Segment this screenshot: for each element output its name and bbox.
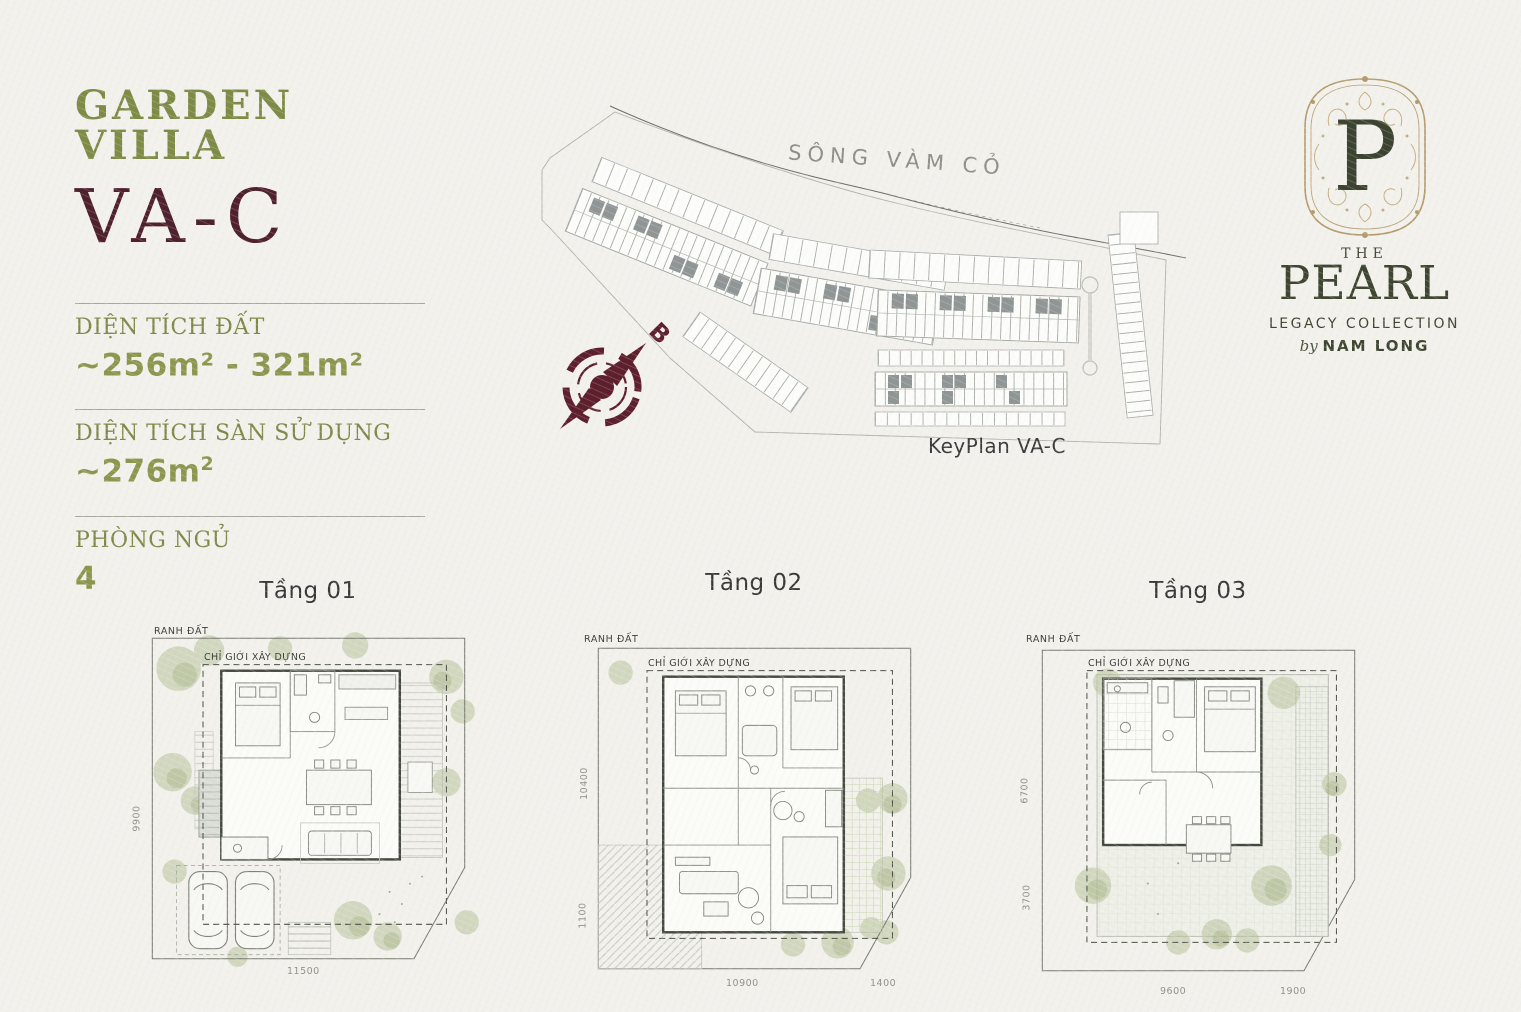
spec-value-text: ~256m² - 321m² xyxy=(75,347,364,383)
villa-code: VA-C xyxy=(75,180,450,254)
brochure-page: GARDEN VILLA VA-C DIỆN TÍCH ĐẤT ~256m² -… xyxy=(0,0,1521,1012)
logo-by-word: by xyxy=(1300,337,1318,355)
floor-title: Tầng 01 xyxy=(132,578,484,604)
dim-bottom: 9600 xyxy=(1160,986,1186,997)
building-line-label: CHỈ GIỚI XÂY DỰNG xyxy=(204,652,306,663)
compass-north-letter: B xyxy=(643,317,676,350)
page-title: GARDEN VILLA xyxy=(75,86,450,166)
building-line-label: CHỈ GIỚI XÂY DỰNG xyxy=(648,658,750,669)
divider xyxy=(75,516,425,517)
dim-left: 3700 xyxy=(1022,884,1033,910)
floor2-plan-drawing xyxy=(582,628,927,983)
floor-card-1: Tầng 01 xyxy=(132,578,484,973)
floor-title: Tầng 02 xyxy=(578,570,930,596)
logo-brand: NAM LONG xyxy=(1322,337,1429,355)
floor1-plan-drawing xyxy=(136,618,481,973)
floor-title: Tầng 03 xyxy=(1022,578,1374,604)
logo-collection: LEGACY COLLECTION xyxy=(1262,316,1467,332)
divider xyxy=(75,409,425,410)
floor-card-2: Tầng 02 xyxy=(578,570,930,983)
spec-land-area: DIỆN TÍCH ĐẤT ~256m² - 321m² xyxy=(75,303,450,383)
dim-left: 10400 xyxy=(579,767,590,800)
keyplan-map: B SÔNG VÀM CỎ KeyPlan VA-C xyxy=(520,100,1190,475)
compass-icon: B xyxy=(557,317,676,432)
info-panel: GARDEN VILLA VA-C DIỆN TÍCH ĐẤT ~256m² -… xyxy=(75,86,450,622)
floor-card-3: Tầng 03 xyxy=(1022,578,1374,985)
dim-bottom: 1400 xyxy=(870,978,896,989)
floor3-plan-drawing xyxy=(1026,630,1371,985)
boundary-label: RANH ĐẤT xyxy=(1026,634,1080,645)
dim-bottom: 10900 xyxy=(726,978,759,989)
boundary-label: RANH ĐẤT xyxy=(584,634,638,645)
brand-logo: P THE PEARL LEGACY COLLECTION by NAM LON… xyxy=(1262,76,1467,355)
spec-label: DIỆN TÍCH SÀN SỬ DỤNG xyxy=(75,421,450,446)
keyplan-caption: KeyPlan VA-C xyxy=(928,434,1066,458)
boundary-label: RANH ĐẤT xyxy=(154,626,208,637)
building-line-label: CHỈ GIỚI XÂY DỰNG xyxy=(1088,658,1190,669)
spec-value-text: ~276m xyxy=(75,454,201,490)
spec-value-text: 4 xyxy=(75,560,97,596)
dim-bottom: 1900 xyxy=(1280,986,1306,997)
floor-plan-2: RANH ĐẤT CHỈ GIỚI XÂY DỰNG 10400 1100 10… xyxy=(578,628,930,983)
spec-label: PHÒNG NGỦ xyxy=(75,528,450,553)
spec-value: ~256m² - 321m² xyxy=(75,347,450,383)
divider xyxy=(75,303,425,304)
logo-name: PEARL xyxy=(1262,262,1467,307)
logo-byline: by NAM LONG xyxy=(1262,337,1467,355)
spec-label: DIỆN TÍCH ĐẤT xyxy=(75,315,450,340)
dim-left: 1100 xyxy=(578,902,589,928)
floor-plan-3: RANH ĐẤT CHỈ GIỚI XÂY DỰNG 6700 3700 960… xyxy=(1022,630,1374,985)
spec-floor-area: DIỆN TÍCH SÀN SỬ DỤNG ~276m2 xyxy=(75,409,450,489)
spec-value: ~276m2 xyxy=(75,453,450,489)
dim-left: 9900 xyxy=(132,805,143,831)
dim-bottom: 11500 xyxy=(287,966,320,977)
monogram-letter: P xyxy=(1332,101,1397,213)
pearl-emblem-icon: P xyxy=(1299,76,1431,238)
spec-value-sup: 2 xyxy=(201,453,215,475)
floor-plan-1: RANH ĐẤT CHỈ GIỚI XÂY DỰNG 9900 11500 xyxy=(132,618,484,973)
dim-left: 6700 xyxy=(1020,777,1031,803)
